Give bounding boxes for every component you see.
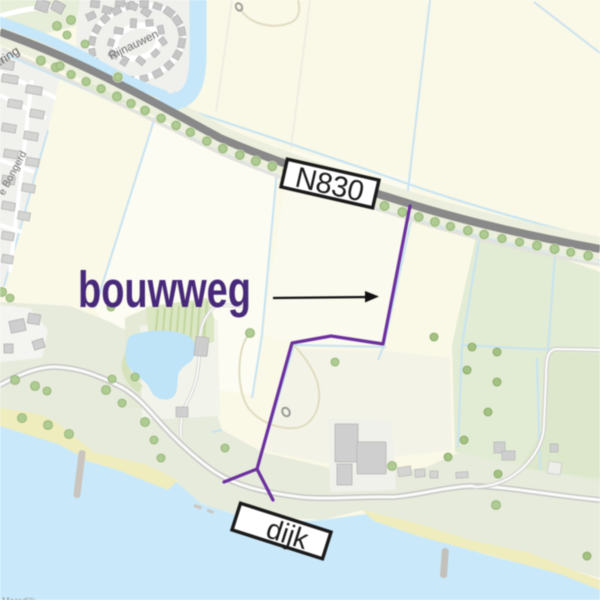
svg-text:bouwweg: bouwweg [78, 261, 251, 318]
svg-text:Marsdijk: Marsdijk [2, 596, 36, 600]
